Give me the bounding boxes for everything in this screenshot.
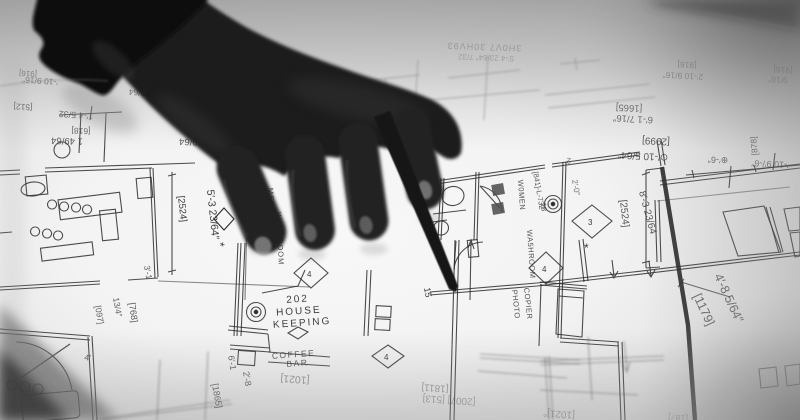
svg-text:202: 202 [286, 293, 309, 306]
svg-text:*: * [213, 242, 227, 247]
svg-text:4: 4 [307, 270, 312, 279]
svg-text:3: 3 [588, 218, 593, 227]
svg-text:15: 15 [422, 287, 434, 299]
svg-text:*: * [584, 241, 589, 255]
svg-text:4: 4 [542, 265, 547, 274]
